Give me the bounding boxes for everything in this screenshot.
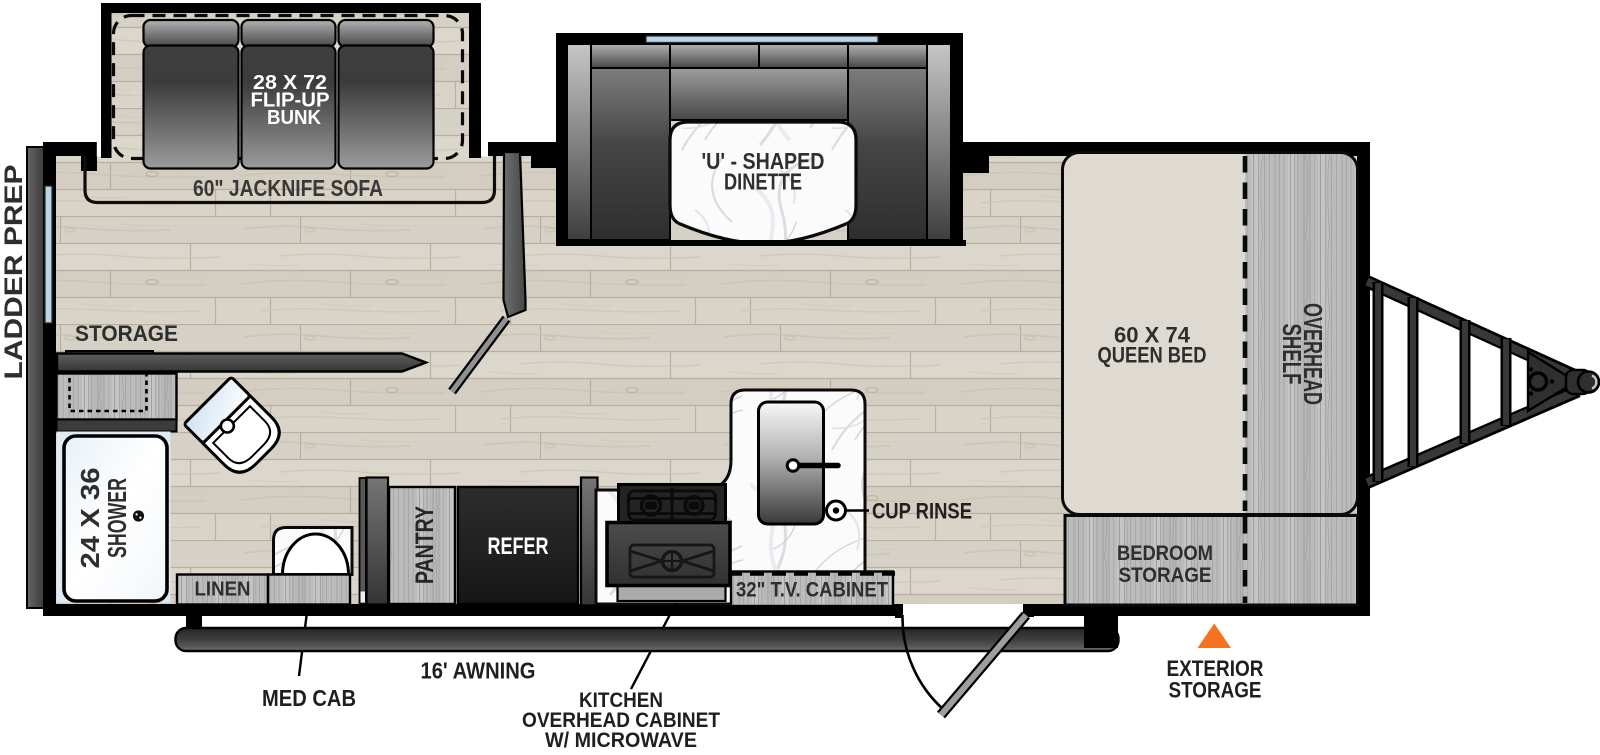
svg-text:MED CAB: MED CAB xyxy=(262,685,356,711)
svg-text:32" T.V. CABINET: 32" T.V. CABINET xyxy=(736,579,888,602)
svg-text:LADDER PREP: LADDER PREP xyxy=(0,165,28,380)
svg-text:STORAGE: STORAGE xyxy=(1119,564,1212,587)
svg-text:DINETTE: DINETTE xyxy=(724,169,802,195)
svg-text:SHOWER: SHOWER xyxy=(102,478,132,558)
svg-text:REFER: REFER xyxy=(488,533,549,560)
svg-text:STORAGE: STORAGE xyxy=(1169,678,1262,703)
svg-text:16' AWNING: 16' AWNING xyxy=(421,658,536,684)
svg-text:LINEN: LINEN xyxy=(195,578,251,601)
svg-text:SHELF: SHELF xyxy=(1277,324,1307,385)
svg-text:STORAGE: STORAGE xyxy=(75,321,178,346)
svg-text:60" JACKNIFE SOFA: 60" JACKNIFE SOFA xyxy=(193,175,383,201)
svg-text:W/ MICROWAVE: W/ MICROWAVE xyxy=(545,729,697,752)
svg-text:24 X 36: 24 X 36 xyxy=(75,468,105,569)
svg-text:CUP RINSE: CUP RINSE xyxy=(872,499,972,524)
svg-text:BEDROOM: BEDROOM xyxy=(1117,542,1213,565)
svg-text:QUEEN BED: QUEEN BED xyxy=(1098,343,1207,368)
svg-text:PANTRY: PANTRY xyxy=(411,506,439,584)
svg-text:BUNK: BUNK xyxy=(267,106,321,129)
